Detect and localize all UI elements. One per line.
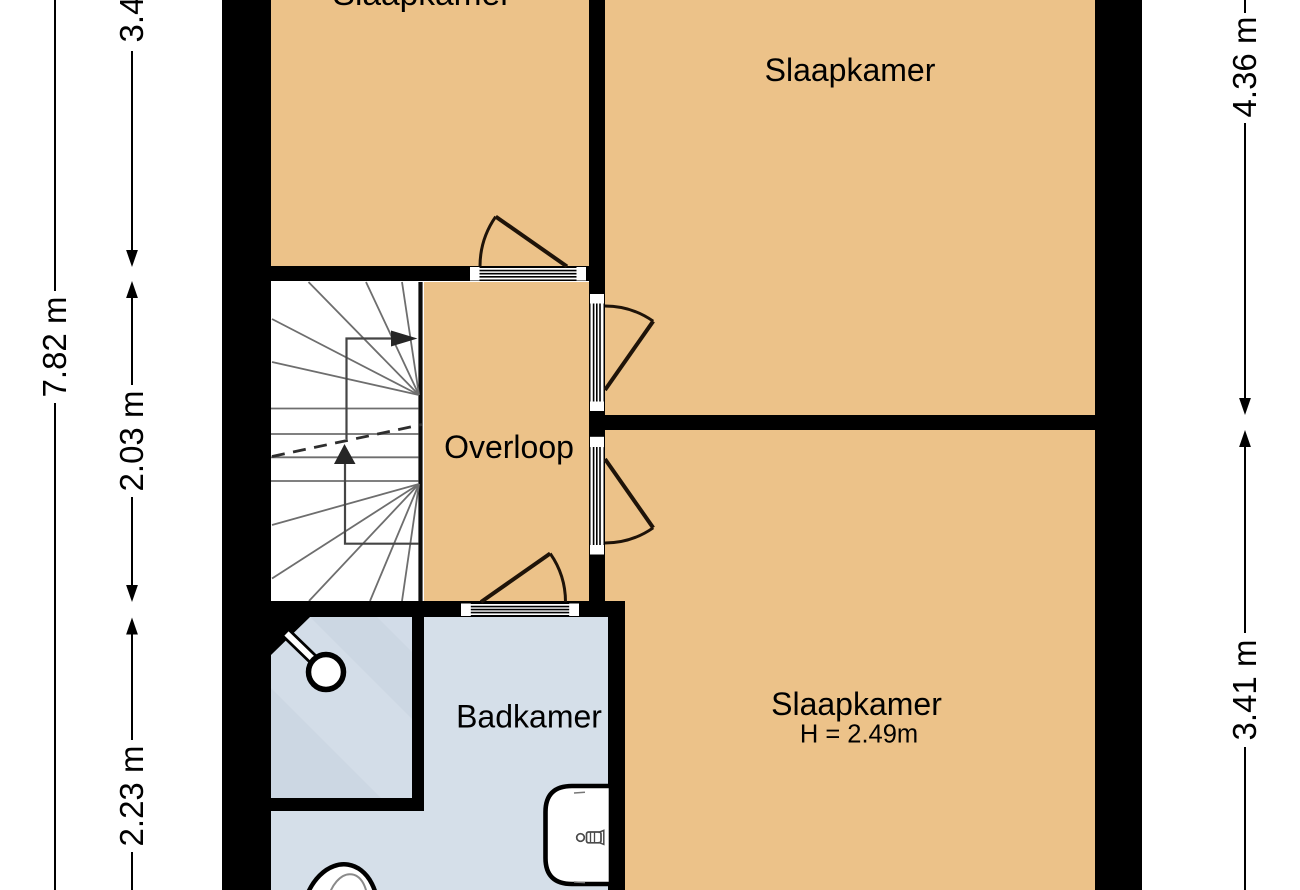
svg-text:3.41 m: 3.41 m xyxy=(1226,640,1263,741)
svg-text:Slaapkamer: Slaapkamer xyxy=(771,686,942,722)
svg-text:2.03 m: 2.03 m xyxy=(113,391,150,492)
svg-text:2.23 m: 2.23 m xyxy=(113,746,150,847)
svg-text:Slaapkamer: Slaapkamer xyxy=(333,0,512,13)
svg-text:H = 2.49m: H = 2.49m xyxy=(800,721,918,749)
svg-text:7.82 m: 7.82 m xyxy=(36,297,73,398)
svg-text:4.36 m: 4.36 m xyxy=(1226,17,1263,118)
svg-text:Badkamer: Badkamer xyxy=(456,699,602,735)
svg-text:Slaapkamer: Slaapkamer xyxy=(765,52,936,88)
svg-text:Overloop: Overloop xyxy=(444,429,574,465)
svg-text:3.48 m: 3.48 m xyxy=(113,0,150,42)
